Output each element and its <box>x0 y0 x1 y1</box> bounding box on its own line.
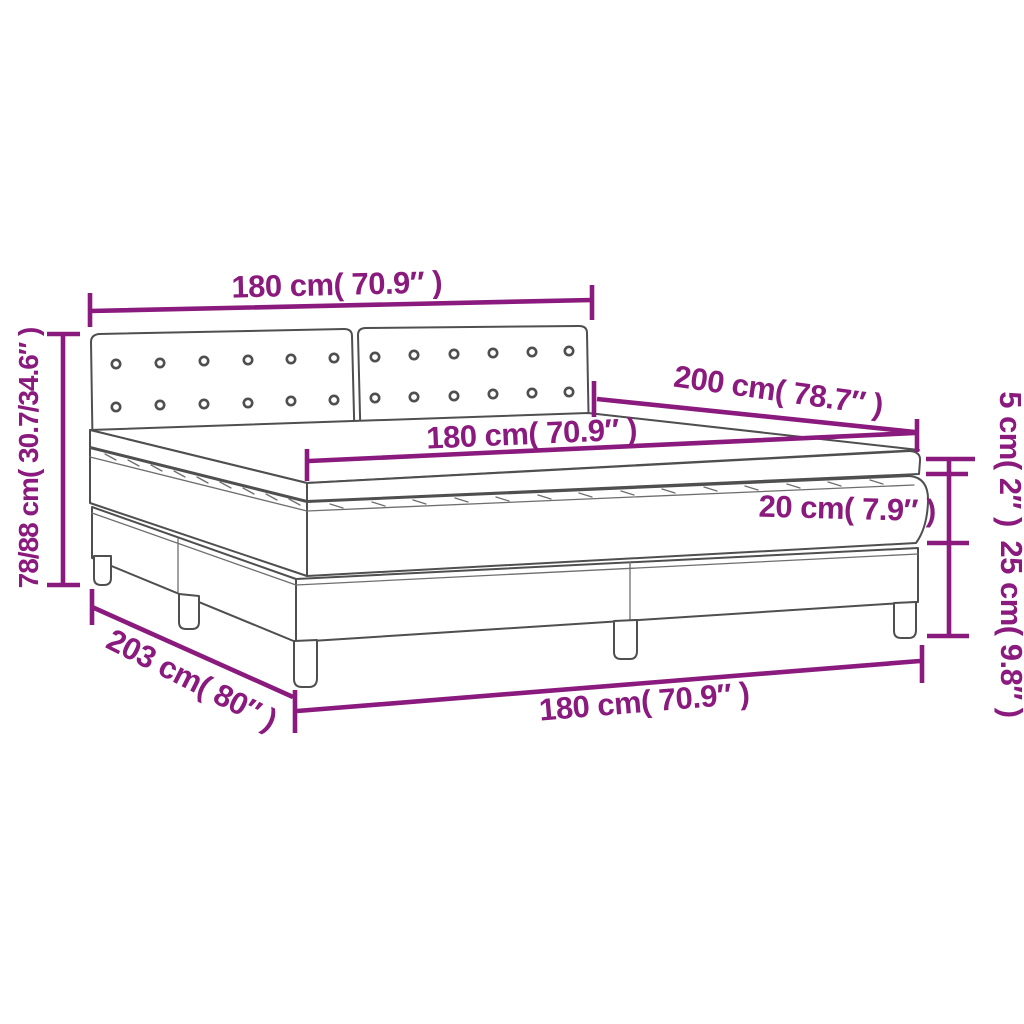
label-total-height: 78/88 cm( 30.7/34.6″ ) <box>13 328 44 589</box>
label-base-width: 180 cm( 70.9″ ) <box>538 675 751 727</box>
label-base-height: 25 cm( 9.8″ ) <box>994 540 1024 717</box>
label-topper-height: 5 cm( 2″ ) <box>993 391 1024 527</box>
dim-line-total-height <box>47 334 80 585</box>
bed-diagram-svg: 180 cm( 70.9″ ) 200 cm( 78.7″ ) 180 cm( … <box>0 0 1024 1024</box>
label-headboard-width: 180 cm( 70.9″ ) <box>231 264 442 304</box>
dimension-diagram: 180 cm( 70.9″ ) 200 cm( 78.7″ ) 180 cm( … <box>0 0 1024 1024</box>
dim-line-right-heights <box>926 459 975 636</box>
label-bed-length: 200 cm( 78.7″ ) <box>672 359 886 423</box>
label-mattress-height: 20 cm( 7.9″ ) <box>758 489 936 529</box>
